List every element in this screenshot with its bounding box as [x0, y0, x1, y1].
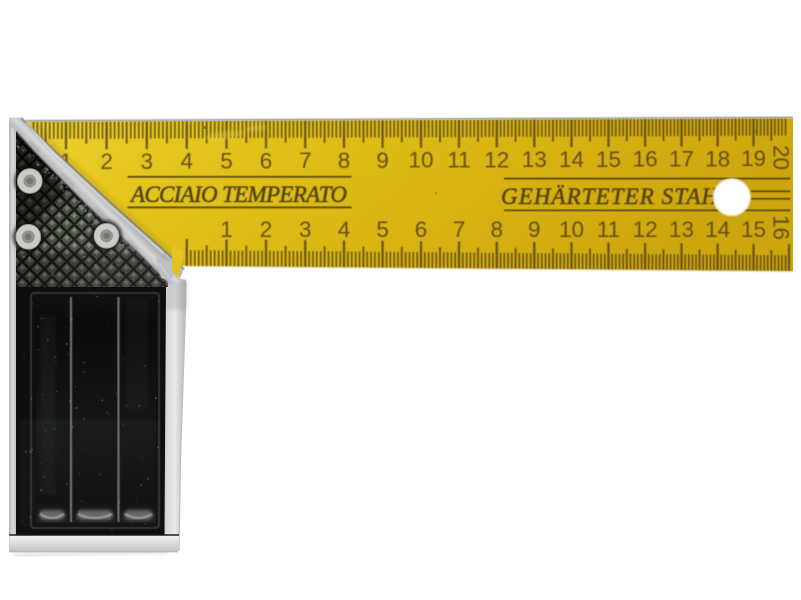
svg-text:12: 12	[484, 147, 509, 172]
svg-text:9: 9	[528, 217, 541, 242]
svg-text:13: 13	[669, 217, 694, 242]
svg-text:2: 2	[260, 217, 273, 242]
svg-text:5: 5	[376, 217, 389, 242]
svg-text:14: 14	[559, 147, 584, 172]
svg-text:20: 20	[768, 145, 793, 170]
svg-text:14: 14	[705, 217, 730, 242]
svg-text:11: 11	[597, 217, 620, 242]
svg-text:17: 17	[669, 146, 694, 171]
svg-text:15: 15	[596, 147, 621, 172]
svg-text:11: 11	[447, 147, 470, 172]
svg-text:8: 8	[338, 148, 351, 173]
svg-text:4: 4	[181, 149, 194, 174]
svg-text:12: 12	[633, 217, 658, 242]
svg-text:19: 19	[741, 146, 766, 171]
svg-text:13: 13	[522, 147, 547, 172]
svg-text:7: 7	[453, 217, 466, 242]
svg-text:7: 7	[299, 148, 312, 173]
svg-text:5: 5	[220, 149, 233, 174]
svg-text:10: 10	[408, 148, 433, 173]
svg-text:10: 10	[559, 217, 584, 242]
svg-text:GEHÄRTETER STAHL: GEHÄRTETER STAHL	[501, 184, 732, 209]
svg-text:2: 2	[100, 149, 113, 174]
svg-text:3: 3	[141, 149, 154, 174]
svg-text:15: 15	[741, 217, 766, 242]
svg-text:6: 6	[415, 217, 428, 242]
svg-text:16: 16	[768, 215, 793, 240]
svg-text:9: 9	[376, 148, 389, 173]
svg-text:4: 4	[338, 217, 351, 242]
svg-text:8: 8	[491, 217, 504, 242]
svg-text:18: 18	[705, 146, 730, 171]
svg-text:1: 1	[220, 217, 233, 242]
svg-text:6: 6	[260, 148, 273, 173]
svg-text:3: 3	[299, 217, 312, 242]
svg-text:ACCIAIO TEMPERATO: ACCIAIO TEMPERATO	[129, 182, 347, 207]
